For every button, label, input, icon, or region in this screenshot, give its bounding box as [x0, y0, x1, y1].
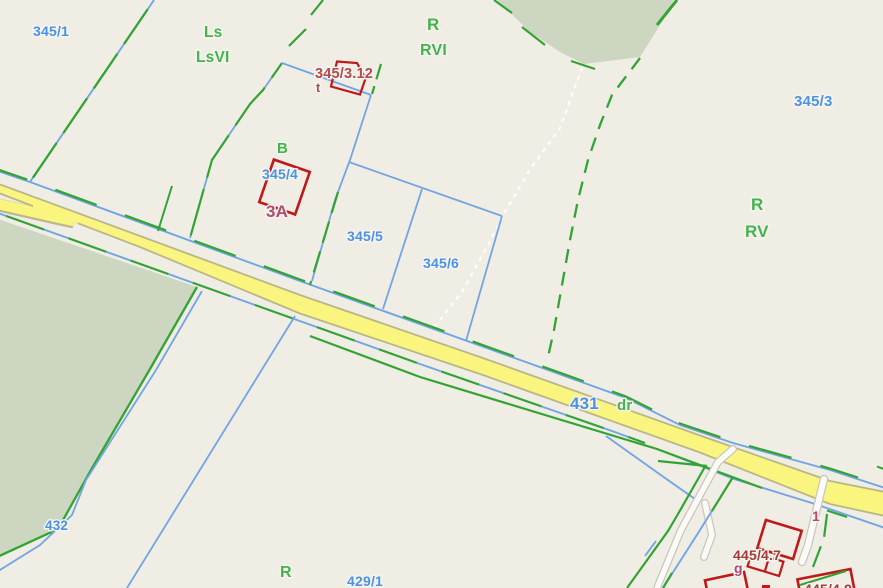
svg-text:345/1: 345/1	[33, 23, 69, 39]
svg-text:429/1: 429/1	[347, 573, 383, 588]
svg-text:Ls: Ls	[204, 24, 223, 41]
svg-text:R: R	[280, 564, 292, 581]
svg-text:345/4: 345/4	[262, 166, 298, 182]
svg-text:R: R	[751, 195, 763, 214]
svg-text:345/3: 345/3	[794, 93, 833, 110]
svg-text:LsVI: LsVI	[196, 49, 230, 66]
svg-text:3A: 3A	[266, 202, 288, 221]
svg-text:431: 431	[570, 394, 599, 413]
svg-text:RVI: RVI	[420, 42, 447, 59]
svg-text:345/3.12: 345/3.12	[315, 66, 373, 82]
svg-text:t: t	[316, 81, 321, 95]
svg-text:B: B	[277, 140, 288, 157]
svg-text:RV: RV	[745, 222, 769, 241]
svg-text:R: R	[427, 15, 439, 34]
svg-text:dr: dr	[617, 397, 632, 414]
svg-text:1: 1	[812, 508, 820, 524]
svg-text:345/5: 345/5	[347, 228, 383, 244]
svg-text:445/4.9: 445/4.9	[804, 581, 852, 588]
svg-text:345/6: 345/6	[423, 255, 459, 271]
svg-text:g: g	[734, 560, 743, 576]
svg-text:432: 432	[45, 518, 68, 533]
